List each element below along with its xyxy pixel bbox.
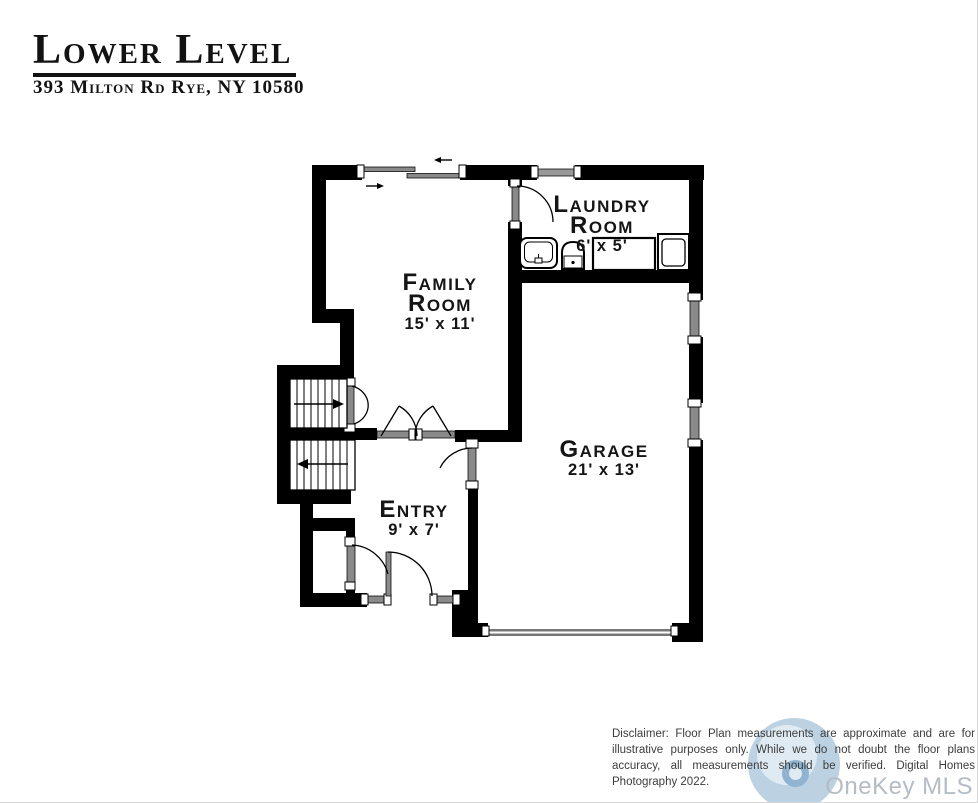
garage-window-1	[690, 300, 699, 337]
room-label-laundry-room: Laundry Room 6' x 5'	[532, 194, 672, 255]
closet-door-leaf	[347, 545, 355, 583]
room-label-entry: Entry 9' x 7'	[344, 499, 484, 539]
room-dimensions: 6' x 5'	[532, 238, 672, 255]
floor-plan-page: Lower Level 393 Milton Rd Rye, NY 10580	[0, 0, 978, 803]
room-dimensions: 9' x 7'	[344, 522, 484, 539]
laundry-window	[537, 169, 575, 176]
room-name: Garage	[534, 439, 674, 460]
onekey-mls-watermark: OneKey MLS	[825, 773, 973, 801]
garage-entry-door-leaf	[468, 448, 476, 482]
room-name: Family Room	[370, 272, 510, 314]
entry-sidelite-left	[367, 596, 385, 603]
laundry-door-leaf	[512, 186, 519, 222]
stairs-up-flight	[290, 379, 347, 428]
entry-sidelite-right	[437, 596, 455, 603]
room-name: Laundry Room	[532, 194, 672, 236]
sliding-door	[362, 157, 460, 189]
garage-door	[487, 629, 672, 636]
garage-window-2	[690, 403, 699, 440]
room-dimensions: 15' x 11'	[370, 316, 510, 333]
floor-plan-drawing	[0, 0, 978, 803]
front-door-leaf	[386, 552, 391, 596]
room-label-family-room: Family Room 15' x 11'	[370, 272, 510, 333]
room-label-garage: Garage 21' x 13'	[534, 439, 674, 479]
room-name: Entry	[344, 499, 484, 520]
stairs-down-flight	[290, 440, 355, 490]
room-dimensions: 21' x 13'	[534, 462, 674, 479]
